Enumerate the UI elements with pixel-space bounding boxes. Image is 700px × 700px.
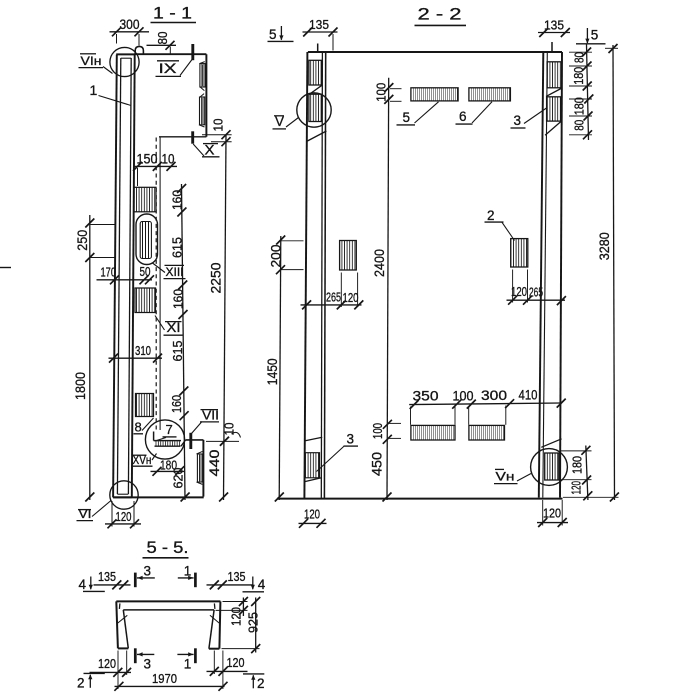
svg-text:135: 135 (228, 569, 246, 584)
svg-text:2 - 2: 2 - 2 (418, 5, 462, 24)
svg-text:160: 160 (169, 395, 184, 413)
svg-text:135: 135 (309, 17, 329, 32)
svg-text:100: 100 (453, 389, 474, 404)
svg-text:5 - 5.: 5 - 5. (147, 538, 189, 557)
svg-text:VI: VI (79, 507, 92, 521)
svg-text:450: 450 (369, 452, 384, 476)
svg-text:4: 4 (79, 577, 87, 592)
svg-text:925: 925 (245, 612, 260, 633)
svg-text:Vн: Vн (496, 470, 515, 484)
svg-text:3280: 3280 (597, 232, 612, 260)
svg-text:3: 3 (347, 432, 355, 447)
svg-text:6: 6 (459, 109, 467, 124)
svg-text:180: 180 (570, 456, 585, 474)
svg-text:10: 10 (210, 119, 225, 132)
svg-text:10: 10 (221, 423, 236, 436)
svg-text:1 - 1: 1 - 1 (153, 4, 192, 23)
svg-text:160: 160 (169, 190, 184, 210)
svg-text:615: 615 (169, 237, 184, 258)
svg-text:1: 1 (184, 657, 192, 672)
svg-text:1: 1 (90, 82, 98, 98)
svg-text:350: 350 (413, 389, 439, 404)
svg-text:120: 120 (511, 284, 527, 299)
svg-text:2: 2 (487, 208, 495, 223)
svg-text:3: 3 (144, 564, 152, 579)
svg-text:135: 135 (98, 569, 116, 584)
svg-text:180: 180 (571, 67, 586, 85)
svg-text:120: 120 (227, 655, 245, 670)
svg-text:2250: 2250 (208, 263, 223, 294)
svg-text:100: 100 (373, 83, 388, 102)
svg-text:300: 300 (120, 17, 140, 32)
svg-text:3: 3 (514, 113, 522, 128)
svg-text:440: 440 (207, 450, 222, 477)
svg-text:5: 5 (591, 28, 599, 43)
svg-text:120: 120 (228, 607, 243, 626)
svg-text:120: 120 (98, 656, 116, 671)
svg-text:200: 200 (268, 245, 283, 268)
svg-text:100: 100 (370, 423, 385, 439)
svg-text:1450: 1450 (265, 358, 280, 385)
svg-text:VII: VII (202, 408, 219, 423)
svg-text:50: 50 (140, 264, 151, 279)
svg-text:5: 5 (403, 110, 411, 125)
svg-text:80: 80 (571, 120, 586, 131)
svg-text:410: 410 (519, 388, 538, 403)
svg-text:120: 120 (116, 509, 132, 524)
svg-text:120: 120 (568, 481, 583, 495)
svg-text:5: 5 (269, 27, 277, 42)
svg-text:8: 8 (135, 420, 142, 435)
svg-text:VIн: VIн (81, 54, 102, 68)
svg-text:250: 250 (75, 230, 90, 251)
svg-text:2: 2 (77, 676, 85, 691)
svg-text:180: 180 (160, 458, 177, 473)
svg-text:1: 1 (184, 564, 192, 579)
svg-text:V: V (275, 114, 284, 129)
svg-text:1800: 1800 (73, 372, 88, 400)
svg-text:180: 180 (571, 97, 586, 115)
svg-text:80: 80 (155, 32, 170, 45)
svg-text:1970: 1970 (152, 671, 177, 686)
svg-text:4: 4 (258, 577, 266, 592)
svg-text:XIII: XIII (166, 267, 184, 279)
svg-text:IX: IX (159, 61, 177, 76)
svg-text:300: 300 (481, 388, 507, 403)
svg-text:310: 310 (135, 343, 151, 358)
svg-text:X: X (205, 143, 215, 158)
svg-text:120: 120 (543, 506, 561, 521)
svg-text:2400: 2400 (372, 249, 387, 277)
svg-text:160: 160 (171, 289, 186, 309)
svg-text:120: 120 (343, 290, 359, 305)
svg-text:XI: XI (167, 320, 181, 335)
svg-text:2: 2 (257, 676, 265, 691)
svg-text:7: 7 (166, 422, 173, 437)
svg-text:80: 80 (571, 52, 586, 63)
svg-text:3: 3 (144, 657, 152, 672)
svg-text:170: 170 (101, 265, 117, 280)
svg-text:615: 615 (170, 341, 185, 362)
svg-text:XVн: XVн (133, 455, 152, 467)
svg-text:265: 265 (326, 290, 341, 305)
